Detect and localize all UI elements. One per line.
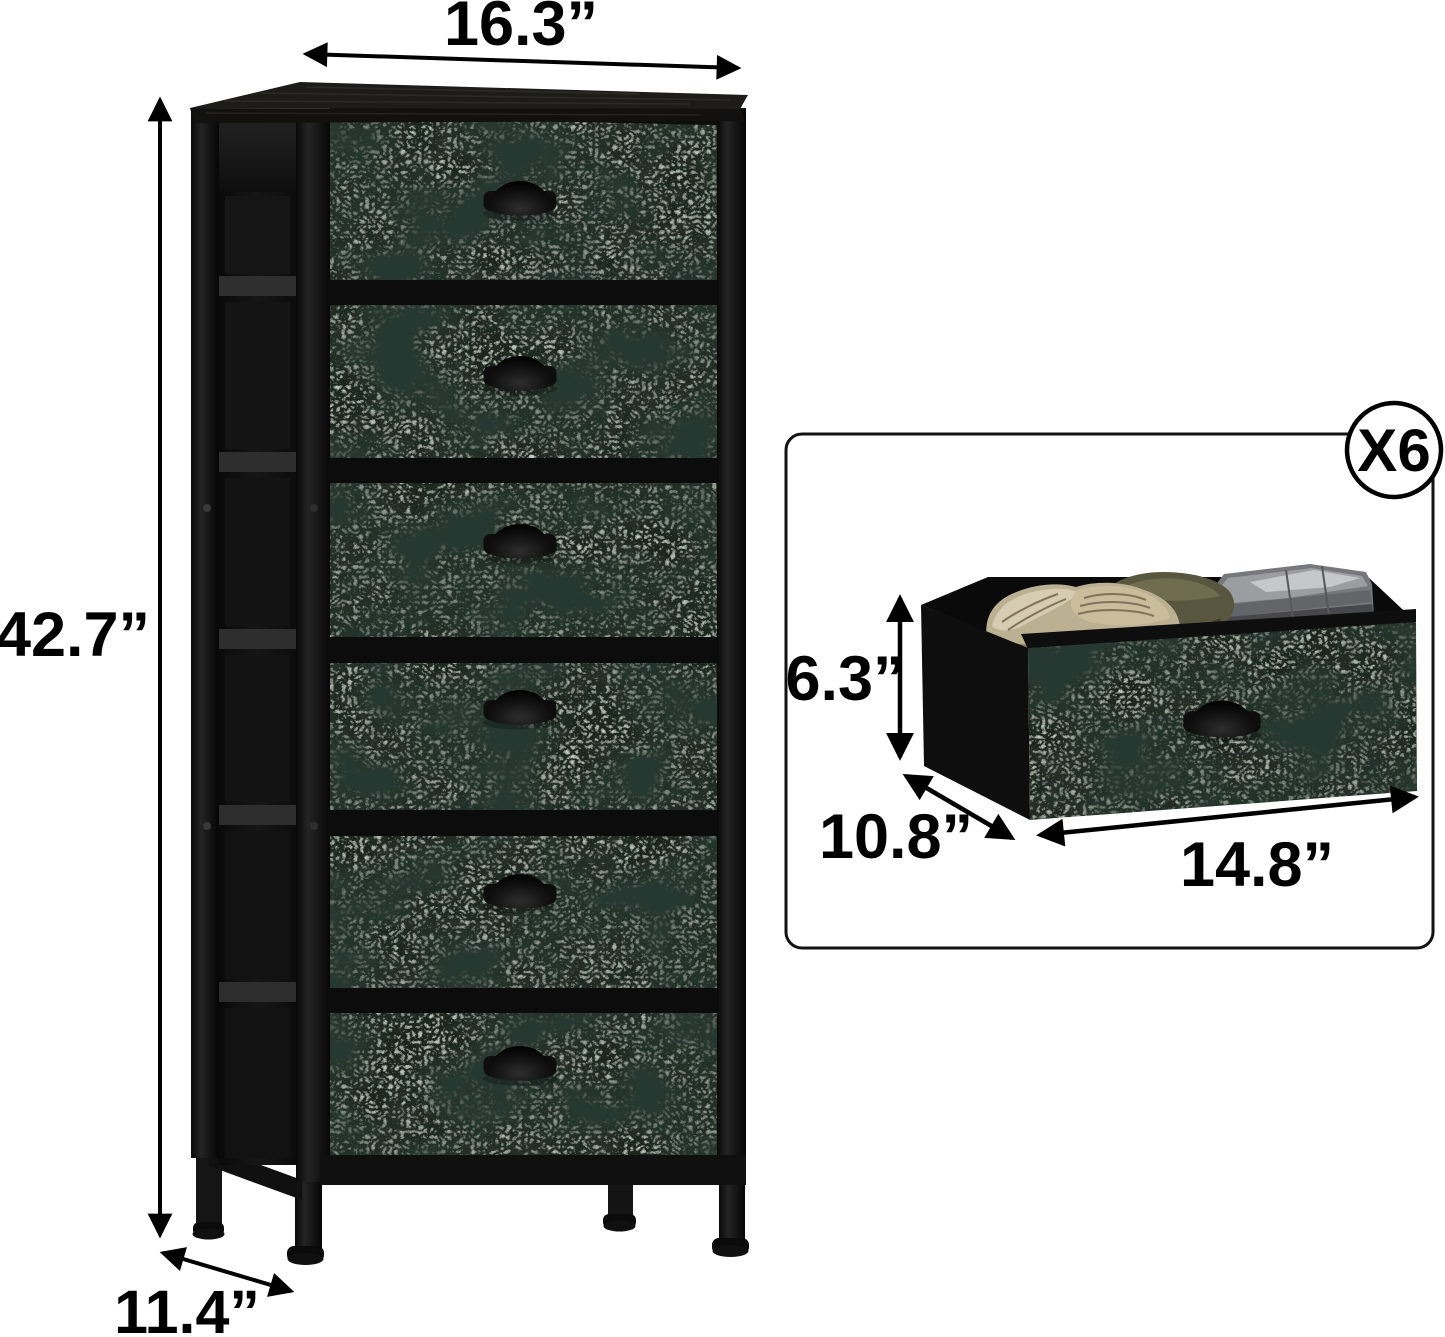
svg-text:14.8”: 14.8” (1180, 830, 1334, 900)
svg-text:11.4”: 11.4” (114, 1278, 260, 1337)
svg-text:42.7”: 42.7” (0, 600, 150, 670)
svg-text:16.3”: 16.3” (444, 0, 598, 59)
svg-text:X6: X6 (1357, 417, 1430, 484)
svg-text:6.3”: 6.3” (785, 644, 904, 714)
svg-text:10.8”: 10.8” (819, 802, 973, 872)
